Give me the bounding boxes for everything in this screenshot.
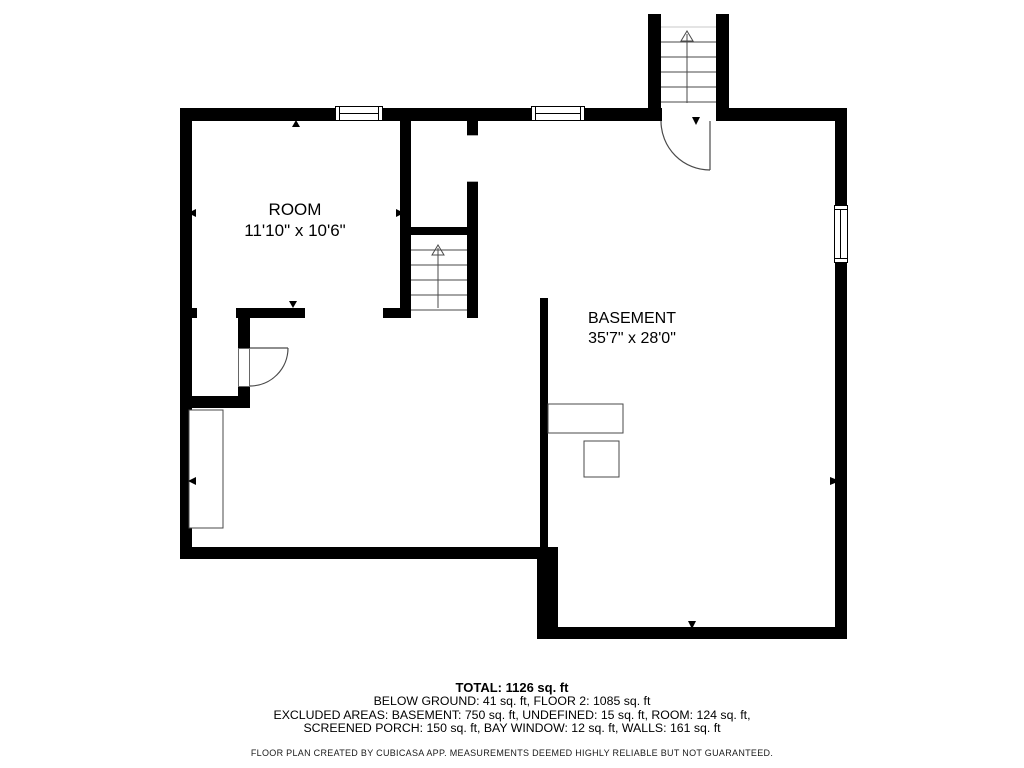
room-label: ROOM 11'10" x 10'6" [215,199,375,241]
door-swing-arc [250,348,288,386]
disclaimer-text: FLOOR PLAN CREATED BY CUBICASA APP. MEAS… [0,748,1024,758]
door-closet [250,348,288,386]
wall-markers [188,117,840,629]
door-swing-arc [661,121,710,170]
middle-staircase [411,245,467,310]
room-name: ROOM [215,199,375,220]
area-breakdown-line: SCREENED PORCH: 150 sq. ft, BAY WINDOW: … [0,722,1024,736]
wall-marker-icon [396,209,404,217]
fixture-rect [189,410,223,528]
wall-marker-icon [692,117,700,125]
wall-marker-icon [289,301,297,308]
plan-linework [0,0,1024,768]
floor-plan-canvas: ROOM 11'10" x 10'6" BASEMENT 35'7" x 28'… [0,0,1024,768]
area-summary: TOTAL: 1126 sq. ft BELOW GROUND: 41 sq. … [0,680,1024,736]
furniture [189,404,623,528]
wall-marker-icon [830,477,840,485]
door-top-stairs [661,121,710,170]
area-breakdown-line: EXCLUDED AREAS: BASEMENT: 750 sq. ft, UN… [0,709,1024,723]
room-name: BASEMENT [552,309,712,329]
wall-marker-icon [292,120,300,127]
fixture-rect [584,441,619,477]
room-dimensions: 11'10" x 10'6" [215,220,375,241]
wall-marker-icon [688,621,696,629]
basement-label: BASEMENT 35'7" x 28'0" [552,309,712,349]
wall-marker-icon [188,209,196,217]
area-breakdown-line: BELOW GROUND: 41 sq. ft, FLOOR 2: 1085 s… [0,695,1024,709]
top-staircase [661,27,716,103]
fixture-rect [548,404,623,433]
total-area-text: TOTAL: 1126 sq. ft [0,680,1024,695]
room-dimensions: 35'7" x 28'0" [552,329,712,349]
